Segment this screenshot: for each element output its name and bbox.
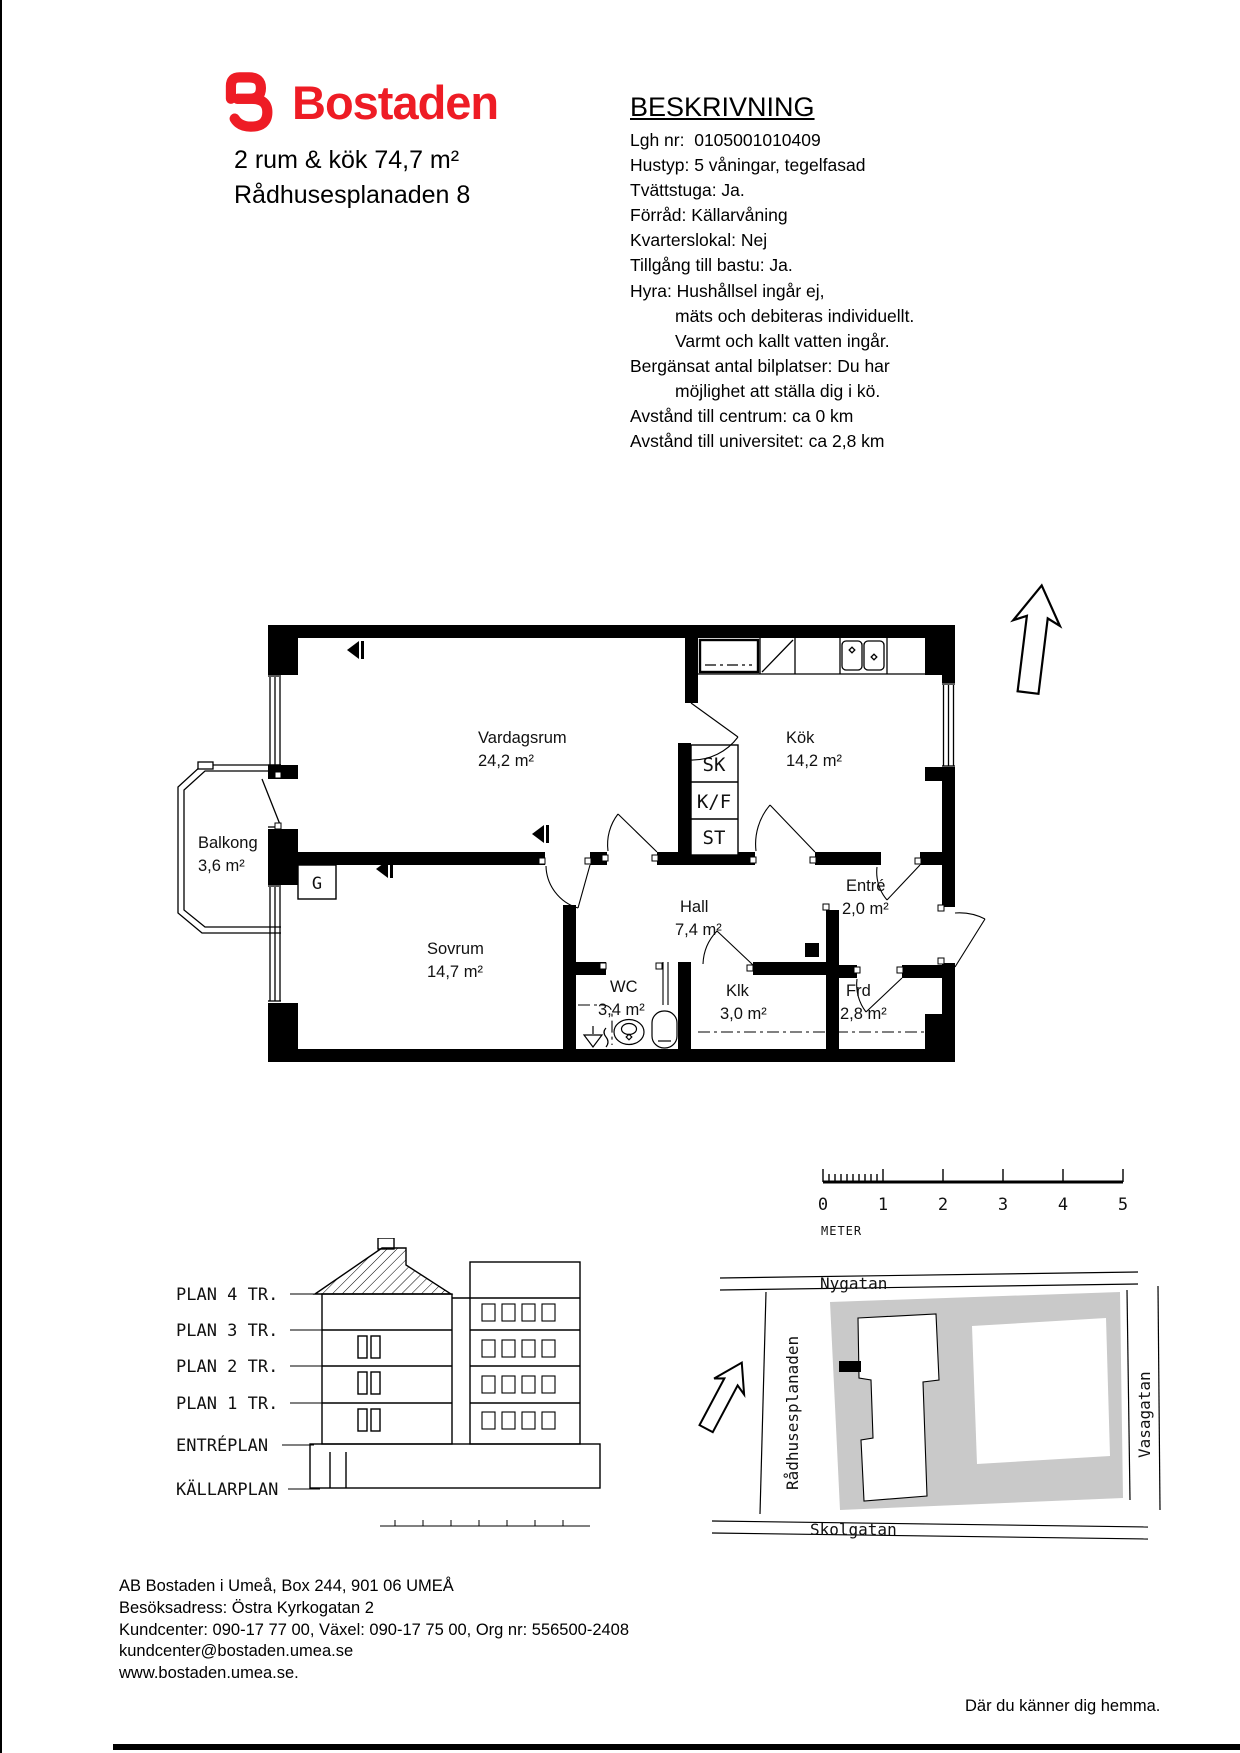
street-label-vasagatan: Vasagatan <box>1135 1371 1154 1458</box>
kitchen-counter <box>698 638 955 674</box>
section-level-plan1: PLAN 1 TR. <box>176 1394 278 1414</box>
street-label-radhusesplanaden: Rådhusesplanaden <box>783 1336 802 1490</box>
room-area-kok: 14,2 m² <box>786 752 842 770</box>
room-area-hall: 7,4 m² <box>675 921 722 939</box>
footer-website: www.bostaden.umea.se. <box>119 1663 629 1685</box>
room-label-balkong: Balkong <box>198 834 258 852</box>
window-left-bedroom <box>268 886 281 1001</box>
room-label-wc: WC <box>610 978 638 996</box>
apartment-location-marker <box>839 1361 861 1372</box>
footer-phone-org: Kundcenter: 090-17 77 00, Växel: 090-17 … <box>119 1620 629 1642</box>
closet-label-g: G <box>312 874 322 894</box>
section-level-kallarplan: KÄLLARPLAN <box>176 1479 278 1500</box>
footer-email: kundcenter@bostaden.umea.se <box>119 1641 629 1663</box>
balcony-door <box>262 777 281 827</box>
pipe-icon <box>604 1028 608 1047</box>
street-label-nygatan: Nygatan <box>820 1274 887 1293</box>
room-label-frd: Frd <box>846 982 871 1000</box>
section-level-plan4: PLAN 4 TR. <box>176 1285 278 1305</box>
room-area-vardagsrum: 24,2 m² <box>478 752 534 770</box>
description-line: Avstånd till centrum: ca 0 km <box>630 404 1090 429</box>
apartment-summary: 2 rum & kök 74,7 m² <box>234 146 459 175</box>
description-line: Hustyp: 5 våningar, tegelfasad <box>630 153 1090 178</box>
building-section: PLAN 4 TR. PLAN 3 TR. PLAN 2 TR. PLAN 1 … <box>170 1238 650 1538</box>
closet-label-sk: SK <box>703 754 726 776</box>
closet-column: SK K/F ST <box>691 745 738 855</box>
street-label-skolgatan: Skolgatan <box>810 1520 897 1539</box>
vent-icon <box>532 825 549 843</box>
footer-visit-address: Besöksadress: Östra Kyrkogatan 2 <box>119 1598 629 1620</box>
room-area-balkong: 3,6 m² <box>198 857 245 875</box>
footer-slogan: Där du känner dig hemma. <box>965 1697 1160 1716</box>
window-left-livingroom <box>268 676 281 765</box>
footer-block: AB Bostaden i Umeå, Box 244, 901 06 UMEÅ… <box>119 1576 629 1685</box>
description-line: Tillgång till bastu: Ja. <box>630 253 1090 278</box>
page-bottom-rule <box>113 1744 1240 1750</box>
scale-tick-2: 2 <box>938 1195 948 1215</box>
closet-label-kf: K/F <box>697 791 731 813</box>
scale-bar: 0 1 2 3 4 5 METER <box>815 1168 1135 1263</box>
site-plan: Nygatan Skolgatan Rådhusesplanaden Vasag… <box>690 1258 1165 1553</box>
description-line: Lgh nr: 0105001010409 <box>630 128 1090 153</box>
floor-plan: SK K/F ST G <box>140 515 1140 1095</box>
section-level-plan3: PLAN 3 TR. <box>176 1321 278 1341</box>
description-line: Bergänsat antal bilplatser: Du har <box>630 354 1090 379</box>
logo: Bostaden <box>216 72 498 132</box>
door-posts <box>275 772 944 973</box>
vent-icon <box>347 641 364 659</box>
scale-tick-1: 1 <box>878 1195 888 1215</box>
room-label-entre: Entré <box>846 877 885 895</box>
apartment-address: Rådhusesplanaden 8 <box>234 181 470 210</box>
washbasin-icon <box>652 1011 677 1048</box>
room-area-frd: 2,8 m² <box>840 1005 887 1023</box>
description-line: Varmt och kallt vatten ingår. <box>630 329 1090 354</box>
bostaden-logo-icon <box>216 72 278 132</box>
section-level-plan2: PLAN 2 TR. <box>176 1357 278 1377</box>
window-right-kitchen <box>942 684 955 766</box>
description-line: Tvättstuga: Ja. <box>630 178 1090 203</box>
floor-drain-icon <box>584 1035 602 1047</box>
scale-tick-4: 4 <box>1058 1195 1068 1215</box>
room-area-wc: 3,4 m² <box>598 1001 645 1019</box>
stove-icon <box>762 640 793 672</box>
north-arrow-icon <box>1005 582 1065 695</box>
description-line: Hyra: Hushållsel ingår ej, <box>630 279 1090 304</box>
description-title: BESKRIVNING <box>630 92 1090 123</box>
closet-label-st: ST <box>703 827 726 849</box>
scale-tick-3: 3 <box>998 1195 1008 1215</box>
room-area-sovrum: 14,7 m² <box>427 963 483 981</box>
scale-tick-0: 0 <box>818 1195 828 1215</box>
scale-unit-label: METER <box>821 1224 862 1238</box>
room-label-vardagsrum: Vardagsrum <box>478 729 567 747</box>
logo-wordmark: Bostaden <box>292 75 498 130</box>
room-area-entre: 2,0 m² <box>842 900 889 918</box>
footer-company: AB Bostaden i Umeå, Box 244, 901 06 UMEÅ <box>119 1576 629 1598</box>
description-line: Förråd: Källarvåning <box>630 203 1090 228</box>
room-label-kok: Kök <box>786 729 815 747</box>
room-label-klk: Klk <box>726 982 750 1000</box>
description-line: Avstånd till universitet: ca 2,8 km <box>630 429 1090 454</box>
room-label-hall: Hall <box>680 898 708 916</box>
section-leader-lines <box>282 1294 322 1489</box>
description-line: möjlighet att ställa dig i kö. <box>630 379 1090 404</box>
description-line: mäts och debiteras individuellt. <box>630 304 1090 329</box>
description-block: BESKRIVNING Lgh nr: 0105001010409 Hustyp… <box>630 92 1090 454</box>
description-line: Kvarterslokal: Nej <box>630 228 1090 253</box>
room-label-sovrum: Sovrum <box>427 940 484 958</box>
site-north-arrow-icon <box>692 1355 757 1437</box>
page-edge-line <box>0 0 2 1753</box>
room-area-klk: 3,0 m² <box>720 1005 767 1023</box>
closet-g: G <box>298 865 336 899</box>
sink-icon <box>864 641 884 670</box>
section-level-entreplan: ENTRÉPLAN <box>176 1434 268 1456</box>
scale-tick-5: 5 <box>1118 1195 1128 1215</box>
sink-icon <box>842 641 862 670</box>
courtyard <box>972 1318 1110 1464</box>
section-drawing <box>310 1238 600 1526</box>
